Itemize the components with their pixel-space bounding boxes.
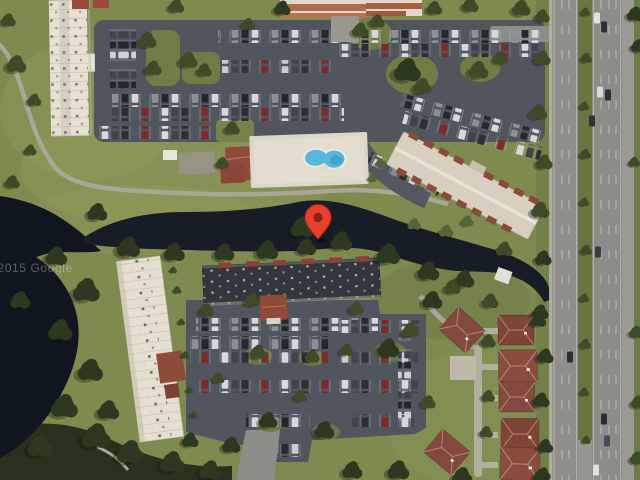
highway	[549, 0, 634, 480]
highway-median	[578, 0, 592, 480]
pool-deck	[249, 132, 369, 188]
map-viewport[interactable]: ©2015 Google	[0, 0, 640, 480]
satellite-imagery: ©2015 Google	[0, 0, 640, 480]
map-watermark: ©2015 Google	[0, 261, 73, 275]
apartment-building-south-dark	[202, 255, 381, 305]
pin-hole	[313, 213, 322, 222]
